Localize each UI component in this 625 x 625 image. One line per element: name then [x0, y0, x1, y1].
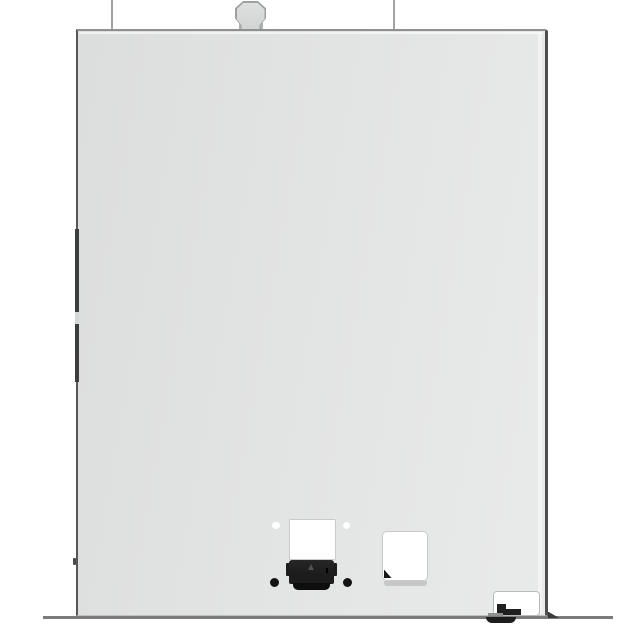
vent-cutout — [382, 531, 428, 581]
panel-right-highlight — [538, 33, 542, 613]
cord-exit-cutout — [289, 519, 336, 560]
mount-guide-line-left — [111, 0, 113, 30]
mounting-hole-right — [343, 522, 351, 530]
vent-cutout-lip — [384, 581, 427, 586]
corner-shadow-wedge — [548, 612, 559, 619]
left-edge-seam-gap — [75, 312, 79, 324]
leveling-foot — [486, 617, 516, 623]
panel-top-highlight — [79, 32, 543, 34]
connector-triangle-mark — [308, 564, 314, 570]
left-edge-nub — [73, 558, 76, 565]
connector-slot — [326, 568, 328, 573]
power-connector-lip — [293, 583, 331, 590]
screw-left — [270, 578, 279, 587]
hanger-tab-face — [237, 3, 265, 30]
screw-right — [343, 578, 352, 587]
base-line — [43, 616, 613, 619]
mount-guide-line-right — [393, 0, 395, 30]
mounting-hole-left — [272, 522, 280, 530]
left-edge-seam — [75, 229, 79, 382]
product-photo-scene — [0, 0, 625, 625]
